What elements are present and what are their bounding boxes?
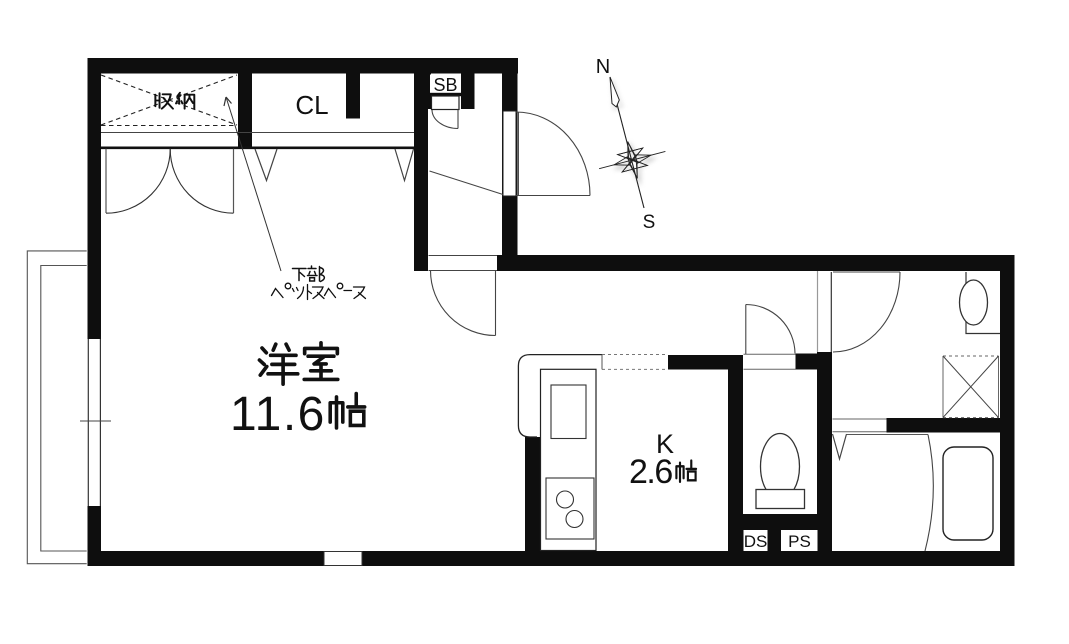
svg-text:SB: SB	[433, 75, 457, 95]
svg-text:11.6: 11.6	[230, 388, 326, 441]
svg-text:N: N	[596, 56, 610, 78]
svg-text:PS: PS	[788, 532, 811, 551]
svg-text:DS: DS	[744, 532, 768, 551]
svg-text:S: S	[643, 212, 656, 233]
svg-text:CL: CL	[295, 90, 328, 120]
svg-text:2.6: 2.6	[629, 453, 672, 491]
